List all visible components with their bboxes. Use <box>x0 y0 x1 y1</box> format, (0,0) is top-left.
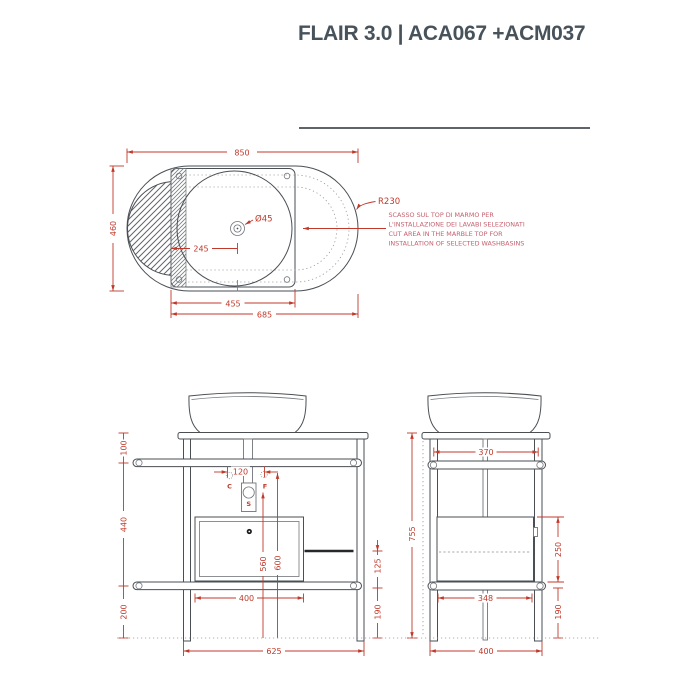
dim-rail-span: 440 <box>120 517 129 532</box>
drawing-sheet: FLAIR 3.0 | ACA067 +ACM037 <box>0 0 700 700</box>
left-leg <box>184 439 191 641</box>
drawer-side <box>437 517 538 581</box>
dim-top-to-rail: 100 <box>120 440 129 455</box>
countertop-side <box>422 433 550 440</box>
dim-base-width-side: 400 <box>478 647 493 656</box>
cutout-template-rect <box>171 169 295 288</box>
note-line-3: CUT AREA IN THE MARBLE TOP FOR <box>389 230 504 238</box>
cutout-note: SCASSO SUL TOP DI MARMO PER L'INSTALLAZI… <box>389 211 525 248</box>
dim-top-extent: 685 <box>257 311 272 320</box>
upper-towel-rail <box>133 459 362 467</box>
note-line-2: L'INSTALLAZIONE DEI LAVABI SELEZIONATI <box>389 221 525 229</box>
countertop-front <box>178 433 368 440</box>
dim-supply-spacing: 120 <box>233 468 248 477</box>
drawer-front <box>195 517 304 581</box>
washbasin-front <box>189 393 306 433</box>
drain-label: S <box>246 500 251 508</box>
note-line-1: SCASSO SUL TOP DI MARMO PER <box>389 211 495 219</box>
dim-inner-span: 348 <box>478 594 493 603</box>
dim-drain-diameter: Ø45 <box>255 214 273 225</box>
front-view: 100 440 200 120 C F S 560 <box>118 393 383 656</box>
cutout-hatched-band <box>171 169 186 288</box>
side-rail-bottom <box>428 582 546 590</box>
dim-top-depth: 460 <box>109 221 118 236</box>
dim-base-width: 625 <box>266 647 281 656</box>
hot-water-label: F <box>263 483 267 491</box>
dim-drain-height: 560 <box>259 556 268 571</box>
side-rail-top <box>428 461 546 469</box>
dim-shelf-to-floor: 190 <box>374 604 383 619</box>
dim-drawer-width: 400 <box>239 594 254 603</box>
washbasin-side <box>428 393 541 433</box>
dim-bar-to-shelf: 125 <box>374 558 383 573</box>
cold-water-label: C <box>227 483 232 491</box>
right-leg <box>357 439 364 641</box>
note-line-4: INSTALLATION OF SELECTED WASHBASINS <box>389 240 525 248</box>
dim-shelf-to-floor-side: 190 <box>554 604 563 619</box>
dim-top-span: 370 <box>478 448 493 457</box>
dim-drawer-height: 250 <box>554 542 563 557</box>
dim-total-height: 755 <box>408 526 417 541</box>
lower-shelf-rail <box>133 582 362 590</box>
side-view: 755 370 250 190 348 <box>407 393 565 656</box>
top-view: 850 460 245 Ø45 R230 SCASSO SUL TOP DI M… <box>108 147 525 320</box>
dim-corner-radius: R230 <box>378 197 400 207</box>
dim-top-width: 850 <box>234 149 249 158</box>
dim-drain-offset: 245 <box>193 245 208 254</box>
dim-supply-height: 600 <box>274 555 283 570</box>
dim-rail-to-floor: 200 <box>120 604 129 619</box>
technical-drawing: 850 460 245 Ø45 R230 SCASSO SUL TOP DI M… <box>0 0 700 700</box>
drawer-handle-side <box>534 528 538 537</box>
dim-cutout-width: 455 <box>225 300 240 309</box>
